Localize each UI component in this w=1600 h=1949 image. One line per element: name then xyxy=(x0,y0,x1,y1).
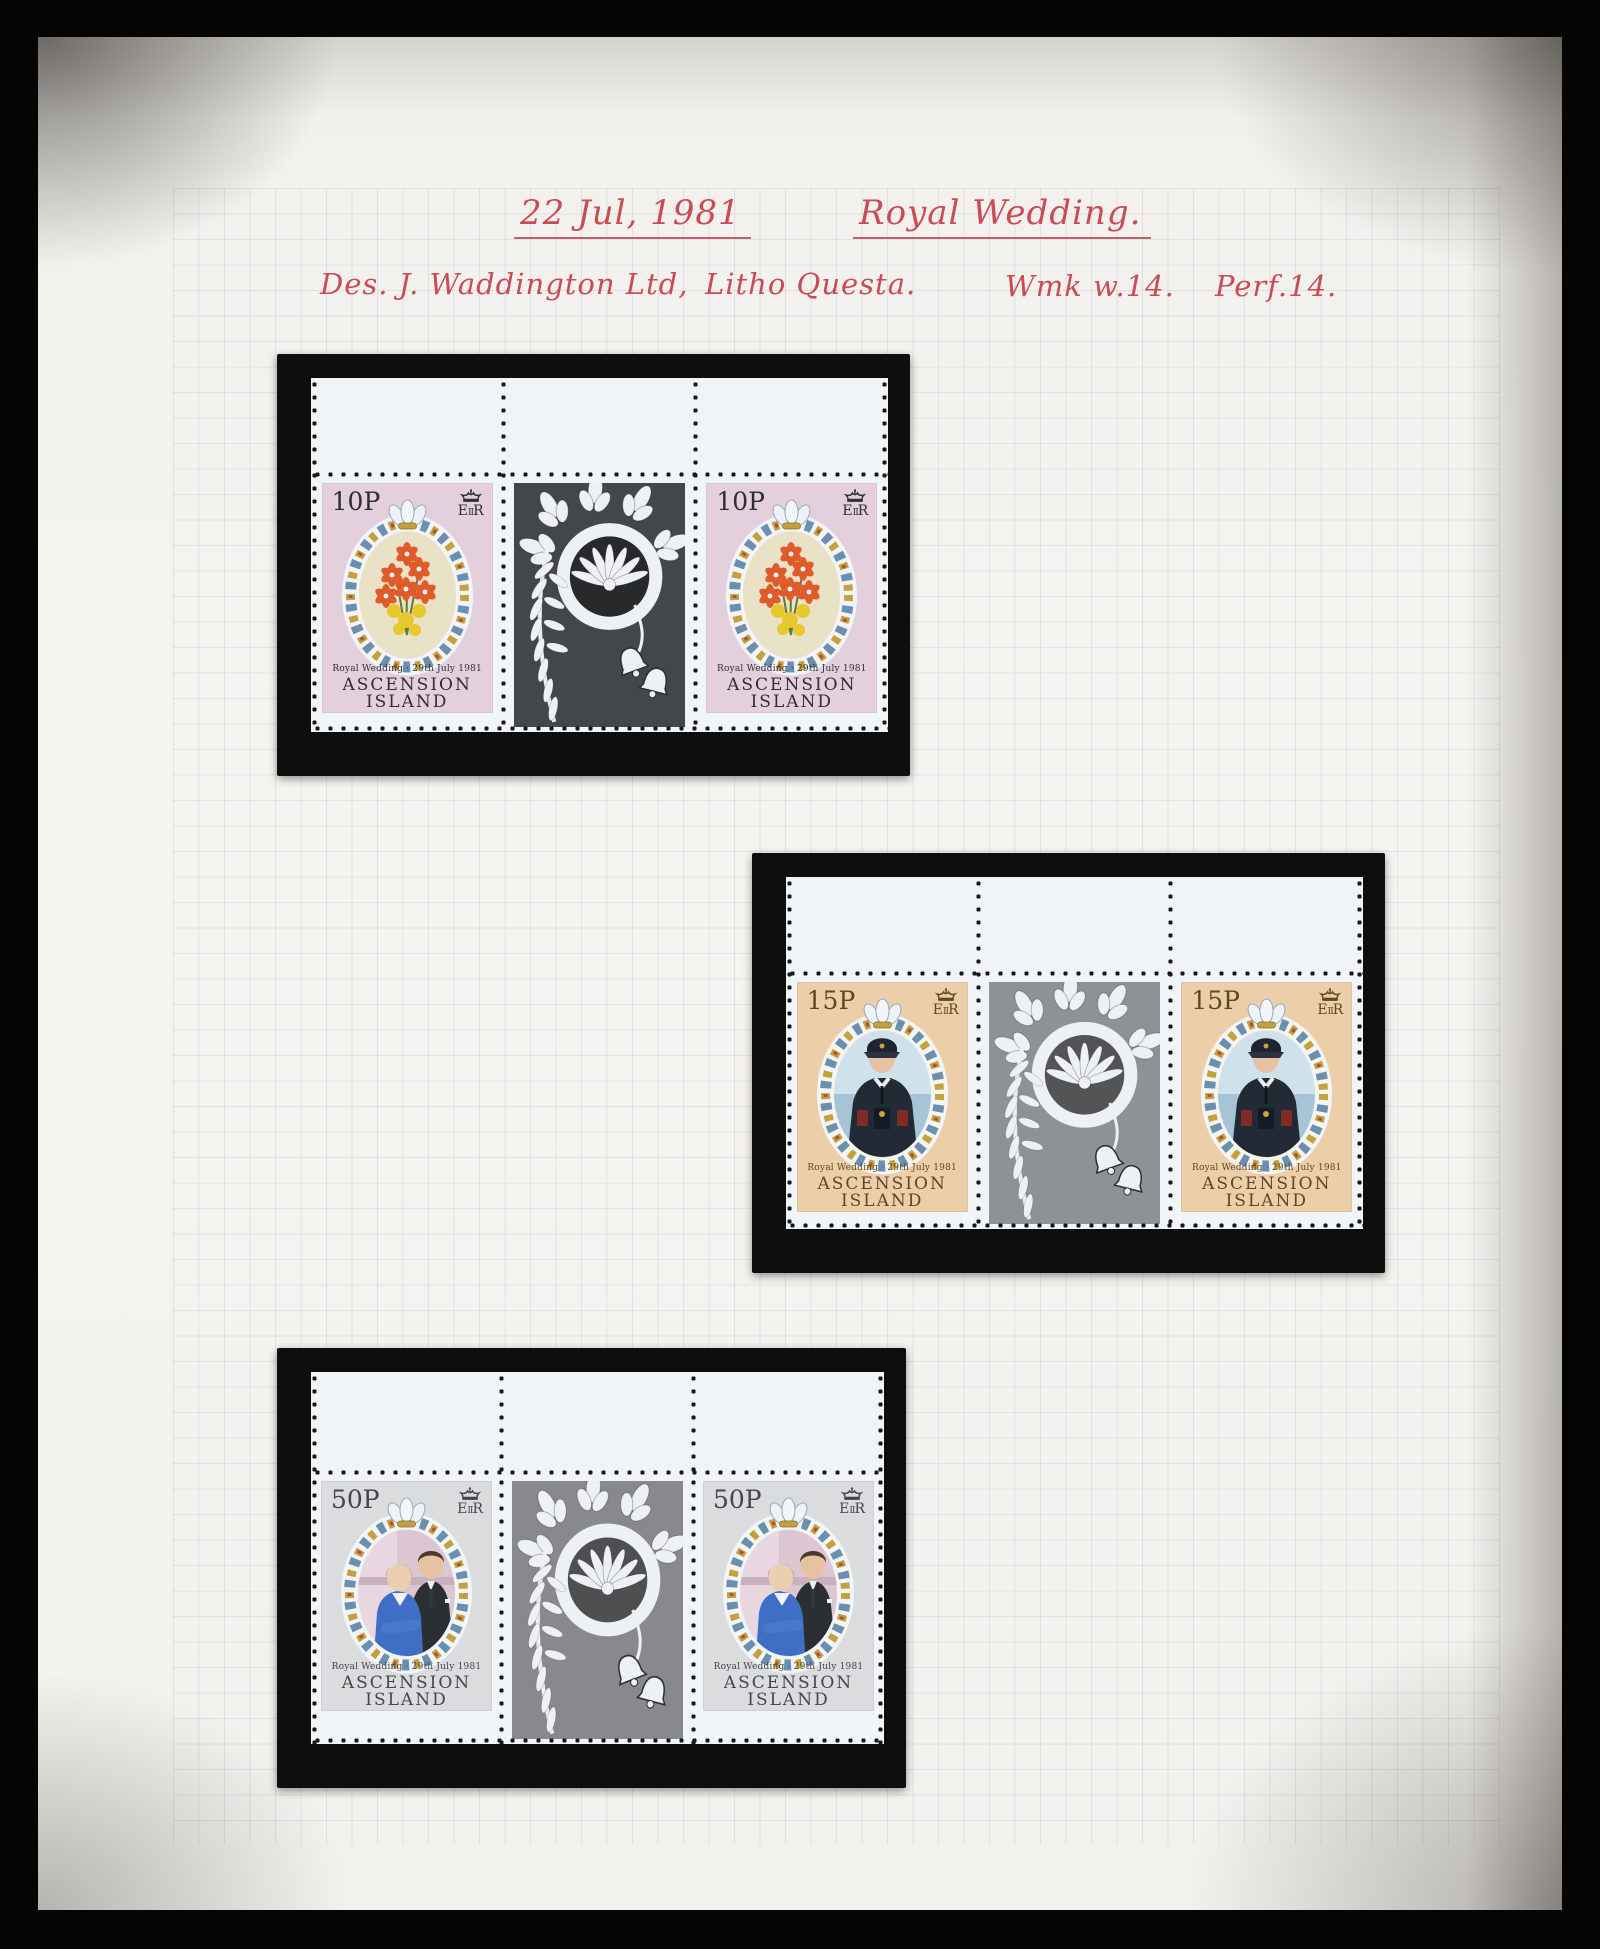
queen-monogram: EIIR xyxy=(842,504,868,520)
gutter-pane xyxy=(978,973,1170,1229)
stamp-pane-left: 15P EIIR Royal Wedding · 29th July 1981 … xyxy=(786,973,978,1229)
denomination: 50P xyxy=(713,1487,762,1513)
sheet-panes: 50P EIIR Royal Wedding · 29th July 1981 … xyxy=(311,1472,884,1744)
album-page: 22 Jul, 1981 Royal Wedding. Des. J. Wadd… xyxy=(38,37,1562,1910)
sheet-selvedge xyxy=(311,1372,884,1472)
perforation-edge-bottom xyxy=(786,1222,1363,1229)
country-name: ASCENSION ISLAND xyxy=(321,1675,492,1709)
perforation-edge-bottom xyxy=(311,1737,884,1744)
royal-cypher: EIIR xyxy=(842,488,868,520)
royal-cypher: EIIR xyxy=(839,1486,865,1518)
stamp-pane-left: 50P EIIR Royal Wedding · 29th July 1981 … xyxy=(311,1472,502,1744)
royal-cypher: EIIR xyxy=(458,488,484,520)
country-name: ASCENSION ISLAND xyxy=(322,677,493,711)
stamp-10p-left: 10P EIIR Royal Wedding · 29th July 1981 … xyxy=(322,483,493,713)
stamp-caption: Royal Wedding · 29th July 1981 xyxy=(797,1163,968,1173)
detail-printing-process: Litho Questa. xyxy=(705,267,916,301)
sheet-selvedge xyxy=(311,378,888,474)
gutter-ornament xyxy=(514,483,685,727)
perforation-horizontal xyxy=(786,970,1363,977)
crown-icon xyxy=(1318,987,1342,1003)
queen-monogram: EIIR xyxy=(839,1502,865,1518)
royal-cypher: EIIR xyxy=(457,1486,483,1518)
perforation-edge-right xyxy=(1356,877,1363,1229)
crown-icon xyxy=(934,987,958,1003)
stamp-sheet: 10P EIIR Royal Wedding · 29th July 1981 … xyxy=(311,378,888,732)
stamp-caption: Royal Wedding · 29th July 1981 xyxy=(703,1662,874,1672)
gutter-pane xyxy=(503,474,695,732)
sheet-panes: 10P EIIR Royal Wedding · 29th July 1981 … xyxy=(311,474,888,732)
stamp-caption: Royal Wedding · 29th July 1981 xyxy=(321,1662,492,1672)
album-page-photo: 22 Jul, 1981 Royal Wedding. Des. J. Wadd… xyxy=(0,0,1600,1949)
perforation-horizontal xyxy=(311,471,888,478)
denomination: 50P xyxy=(331,1487,380,1513)
queen-monogram: EIIR xyxy=(933,1003,959,1019)
heading-title: Royal Wedding. xyxy=(853,193,1151,239)
stamp-15p-left: 15P EIIR Royal Wedding · 29th July 1981 … xyxy=(797,982,968,1212)
gutter-pair-block-15p: 15P EIIR Royal Wedding · 29th July 1981 … xyxy=(752,853,1385,1273)
gutter-ornament xyxy=(512,1481,683,1739)
stamp-pane-left: 10P EIIR Royal Wedding · 29th July 1981 … xyxy=(311,474,503,732)
stamp-pane-right: 15P EIIR Royal Wedding · 29th July 1981 … xyxy=(1171,973,1363,1229)
crown-icon xyxy=(843,488,867,504)
heading-date: 22 Jul, 1981 xyxy=(514,193,751,239)
denomination: 15P xyxy=(807,988,856,1014)
denomination: 15P xyxy=(1191,988,1240,1014)
gutter-pane xyxy=(502,1472,693,1744)
crown-icon xyxy=(458,1486,482,1502)
detail-perforation: Perf.14. xyxy=(1215,269,1337,303)
country-name: ASCENSION ISLAND xyxy=(1181,1176,1352,1210)
gutter-ornament-graphic xyxy=(514,483,685,727)
denomination: 10P xyxy=(332,489,381,515)
crown-icon xyxy=(840,1486,864,1502)
perforation-vertical xyxy=(498,1372,505,1744)
perforation-horizontal xyxy=(311,1469,884,1476)
country-name: ASCENSION ISLAND xyxy=(703,1675,874,1709)
stamp-caption: Royal Wedding · 29th July 1981 xyxy=(706,664,877,674)
royal-cypher: EIIR xyxy=(1317,987,1343,1019)
stamp-15p-right: 15P EIIR Royal Wedding · 29th July 1981 … xyxy=(1181,982,1352,1212)
gutter-pair-block-50p: 50P EIIR Royal Wedding · 29th July 1981 … xyxy=(277,1348,906,1788)
perforation-edge-left xyxy=(311,1372,318,1744)
queen-monogram: EIIR xyxy=(458,504,484,520)
country-name: ASCENSION ISLAND xyxy=(797,1176,968,1210)
queen-monogram: EIIR xyxy=(1317,1003,1343,1019)
perforation-edge-left xyxy=(786,877,793,1229)
stamp-50p-left: 50P EIIR Royal Wedding · 29th July 1981 … xyxy=(321,1481,492,1711)
perforation-vertical xyxy=(500,378,507,732)
stamp-10p-right: 10P EIIR Royal Wedding · 29th July 1981 … xyxy=(706,483,877,713)
perforation-edge-bottom xyxy=(311,725,888,732)
detail-designer: Des. J. Waddington Ltd, xyxy=(320,267,688,301)
stamp-caption: Royal Wedding · 29th July 1981 xyxy=(322,664,493,674)
detail-watermark: Wmk w.14. xyxy=(1005,269,1175,303)
perforation-edge-right xyxy=(877,1372,884,1744)
country-name: ASCENSION ISLAND xyxy=(706,677,877,711)
stamp-sheet: 50P EIIR Royal Wedding · 29th July 1981 … xyxy=(311,1372,884,1744)
crown-icon xyxy=(459,488,483,504)
queen-monogram: EIIR xyxy=(457,1502,483,1518)
royal-cypher: EIIR xyxy=(933,987,959,1019)
gutter-pair-block-10p: 10P EIIR Royal Wedding · 29th July 1981 … xyxy=(277,354,910,776)
denomination: 10P xyxy=(716,489,765,515)
gutter-ornament-graphic xyxy=(512,1481,683,1739)
perforation-vertical xyxy=(975,877,982,1229)
sheet-panes: 15P EIIR Royal Wedding · 29th July 1981 … xyxy=(786,973,1363,1229)
stamp-pane-right: 50P EIIR Royal Wedding · 29th July 1981 … xyxy=(693,1472,884,1744)
perforation-edge-left xyxy=(311,378,318,732)
perforation-vertical xyxy=(692,378,699,732)
gutter-ornament-graphic xyxy=(989,982,1160,1224)
sheet-selvedge xyxy=(786,877,1363,973)
stamp-50p-right: 50P EIIR Royal Wedding · 29th July 1981 … xyxy=(703,1481,874,1711)
perforation-edge-right xyxy=(881,378,888,732)
perforation-vertical xyxy=(1167,877,1174,1229)
gutter-ornament xyxy=(989,982,1160,1224)
stamp-caption: Royal Wedding · 29th July 1981 xyxy=(1181,1163,1352,1173)
perforation-vertical xyxy=(690,1372,697,1744)
stamp-sheet: 15P EIIR Royal Wedding · 29th July 1981 … xyxy=(786,877,1363,1229)
stamp-pane-right: 10P EIIR Royal Wedding · 29th July 1981 … xyxy=(696,474,888,732)
